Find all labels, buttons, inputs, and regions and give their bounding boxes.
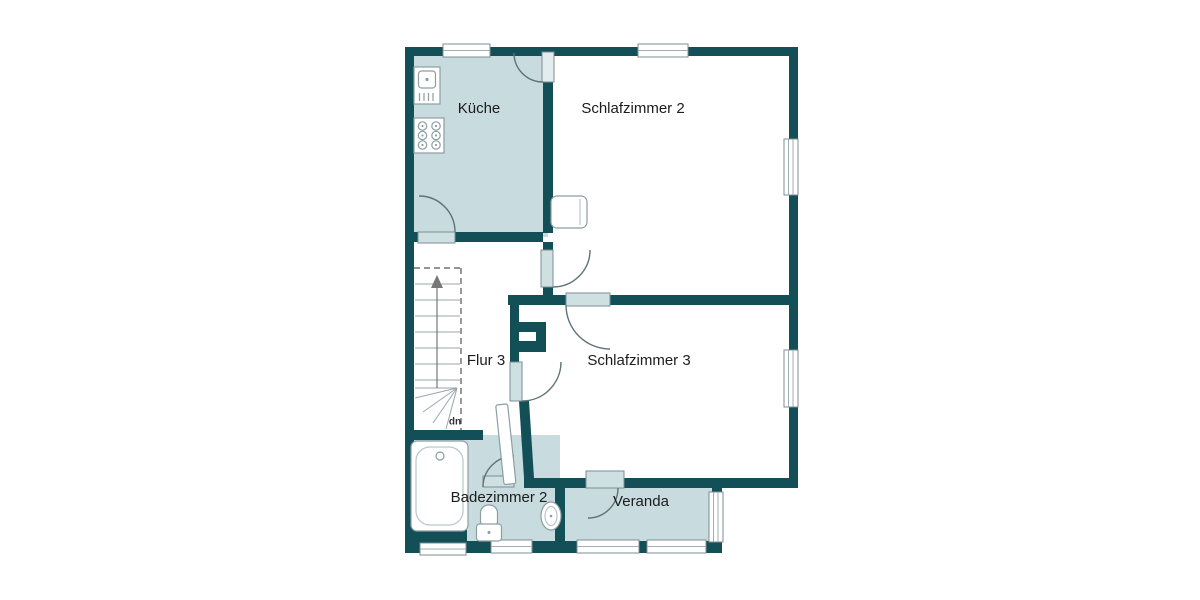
stairs-up-arrowhead <box>431 275 443 288</box>
window-veranda-bottom-2 <box>647 540 706 553</box>
label-kueche: Küche <box>458 100 501 117</box>
label-schlafzimmer-3: Schlafzimmer 3 <box>587 352 690 369</box>
wall-bath-bottom-pier <box>532 541 568 553</box>
window-sz2-right <box>784 139 798 195</box>
label-badezimmer-2: Badezimmer 2 <box>451 489 548 506</box>
window-kueche-top <box>443 44 490 57</box>
window-tub-bottom <box>420 543 466 555</box>
chimney-flue-hole <box>519 332 536 341</box>
window-veranda-right <box>709 492 723 542</box>
wall-sz3-top-a <box>508 295 566 305</box>
label-flur-3: Flur 3 <box>467 352 505 369</box>
wall-bottom-main-b <box>622 478 798 488</box>
window-veranda-bottom-1 <box>577 540 639 553</box>
wall-kueche-bottom-a <box>405 232 419 242</box>
window-sz3-right <box>784 350 798 407</box>
wall-right <box>789 47 798 488</box>
bathtub-icon <box>411 441 468 531</box>
window-bath-bottom <box>491 540 532 553</box>
wall-kueche-bottom-b <box>454 232 543 242</box>
wall-bath-bottom-mid <box>467 541 491 553</box>
wall-sz3-top-b <box>610 295 798 305</box>
wall-veranda-corner <box>707 541 722 553</box>
washbasin-icon <box>541 502 561 530</box>
window-sz2-top <box>638 44 688 57</box>
label-schlafzimmer-2: Schlafzimmer 2 <box>581 100 684 117</box>
wall-bath-top <box>405 430 483 440</box>
wall-flur-sz2-a <box>543 242 553 250</box>
door-flur-sz3 <box>510 362 561 401</box>
door-flur-sz2 <box>541 250 590 287</box>
floor-plan-canvas: up <box>0 0 1200 600</box>
floor-plan-drawing: up <box>0 0 1200 600</box>
label-veranda: Veranda <box>613 493 670 510</box>
kitchen-sink-icon <box>414 67 440 104</box>
door-sz3-top <box>566 293 610 349</box>
cabinet-sz2 <box>551 196 587 228</box>
stove-icon <box>414 118 444 153</box>
stairs-up-label: up <box>449 416 461 427</box>
veranda-floor <box>563 482 715 547</box>
stairs: up <box>414 268 461 430</box>
